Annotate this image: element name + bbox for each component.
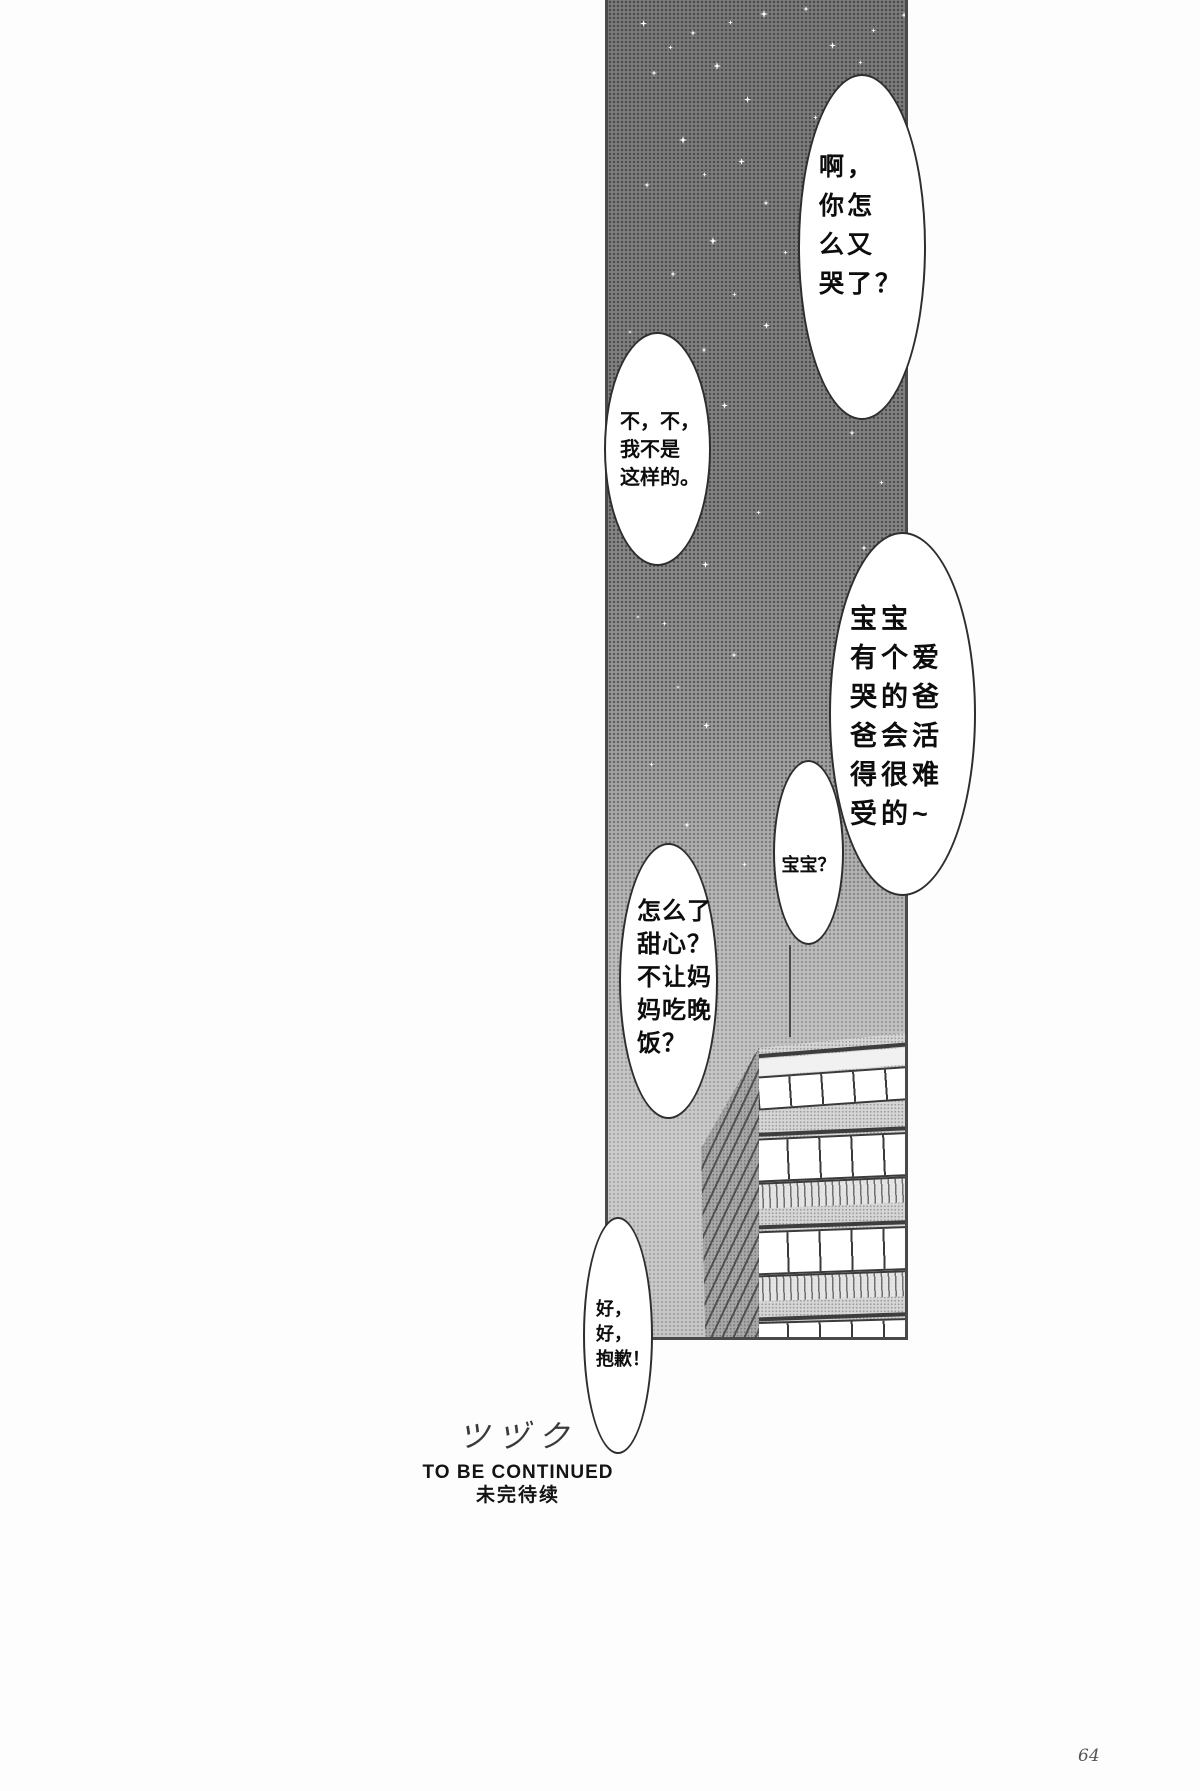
speech-bubble-baobao: 宝宝？ xyxy=(773,760,844,945)
balcony-railing-3 xyxy=(741,1270,908,1302)
bubble-text: 好， 好， 抱歉！ xyxy=(596,1297,650,1372)
building-corner-line xyxy=(789,945,791,1037)
page-number: 64 xyxy=(1078,1746,1100,1766)
manga-page: 啊， 你怎 么又 哭了？ 不，不， 我不是 这样的。 宝宝 有个爱 哭的爸 爸会… xyxy=(0,0,1200,1791)
footer-tsuzuku-text: ツヅク xyxy=(368,1420,668,1454)
footer: ツヅク TO BE CONTINUED 未完待续 xyxy=(368,1420,668,1506)
footer-to-be-continued-text: TO BE CONTINUED xyxy=(368,1463,668,1483)
speech-bubble-baobao-long: 宝宝 有个爱 哭的爸 爸会活 得很难 受的~ xyxy=(829,532,976,896)
bubble-text: 宝宝 有个爱 哭的爸 爸会活 得很难 受的~ xyxy=(850,600,943,834)
window-band-3 xyxy=(754,1226,908,1275)
window-band-4 xyxy=(755,1318,908,1340)
window-band-2 xyxy=(754,1132,908,1183)
bubble-text: 怎么了 甜心？ 不让妈 妈吃晚 饭？ xyxy=(637,895,712,1060)
bubble-text: 不，不， 我不是 这样的。 xyxy=(620,408,700,492)
speech-bubble-sweetheart: 怎么了 甜心？ 不让妈 妈吃晚 饭？ xyxy=(619,843,718,1119)
speech-bubble-cry: 啊， 你怎 么又 哭了？ xyxy=(798,74,926,420)
bubble-text: 宝宝？ xyxy=(782,829,836,877)
bubble-text: 啊， 你怎 么又 哭了？ xyxy=(819,148,903,304)
speech-bubble-sorry: 好， 好， 抱歉！ xyxy=(583,1217,653,1454)
footer-weiwandaixu-text: 未完待续 xyxy=(368,1486,668,1506)
speech-bubble-deny: 不，不， 我不是 这样的。 xyxy=(604,332,711,566)
